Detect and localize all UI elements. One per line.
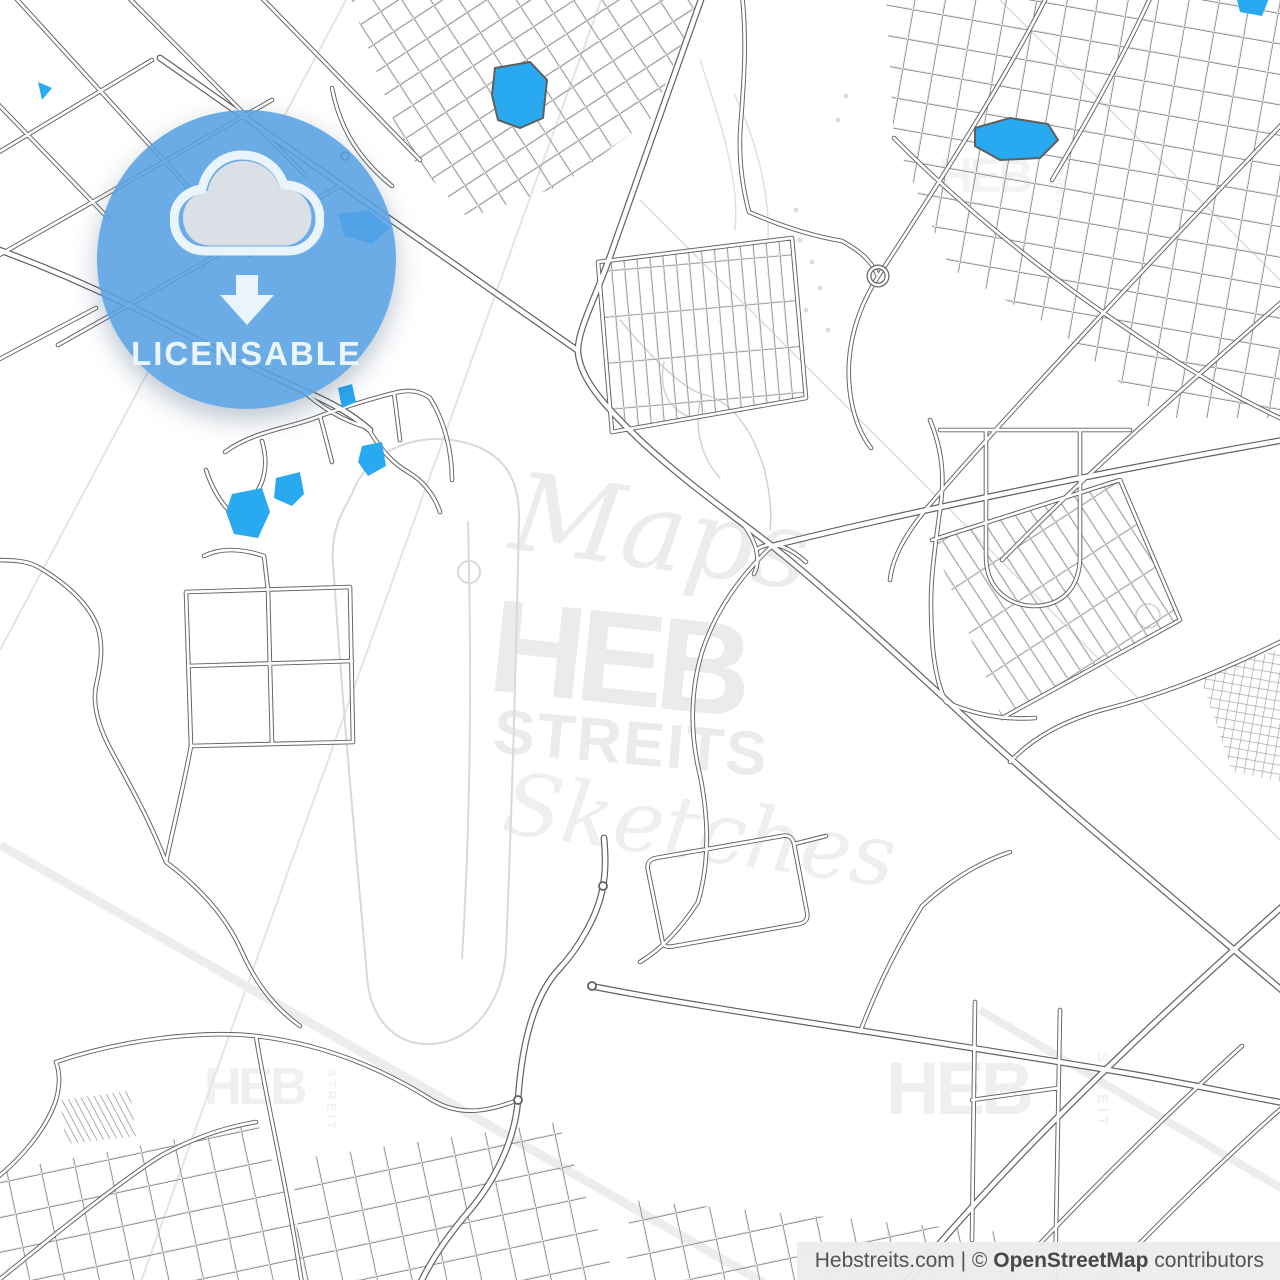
lake-top-right [975,118,1058,160]
lake-top-center [492,62,547,128]
licensable-badge: LICENSABLE [97,110,396,409]
watermark-streit-vertical-bottom-left: STREIT [324,1068,339,1132]
attribution-site: Hebstreits.com [815,1249,955,1273]
badge-label: LICENSABLE [131,335,362,373]
attribution-bar: Hebstreits.com | © OpenStreetMap contrib… [797,1242,1280,1280]
watermark-heb-bottom-left: HEB [204,1058,306,1116]
cloud-download-icon [170,147,324,333]
attribution-copyright: © [972,1249,993,1273]
download-arrow-icon [220,275,274,325]
attribution-osm: OpenStreetMap [993,1249,1148,1273]
attribution-separator: | [955,1249,972,1273]
watermark-heb-bottom-right: HEB [886,1047,1032,1130]
map-product-preview: Maps HEB STREITS Sketches HEB STREIT HEB… [0,0,1280,1280]
attribution-suffix: contributors [1148,1249,1264,1273]
cloud-icon-fill [183,161,311,245]
